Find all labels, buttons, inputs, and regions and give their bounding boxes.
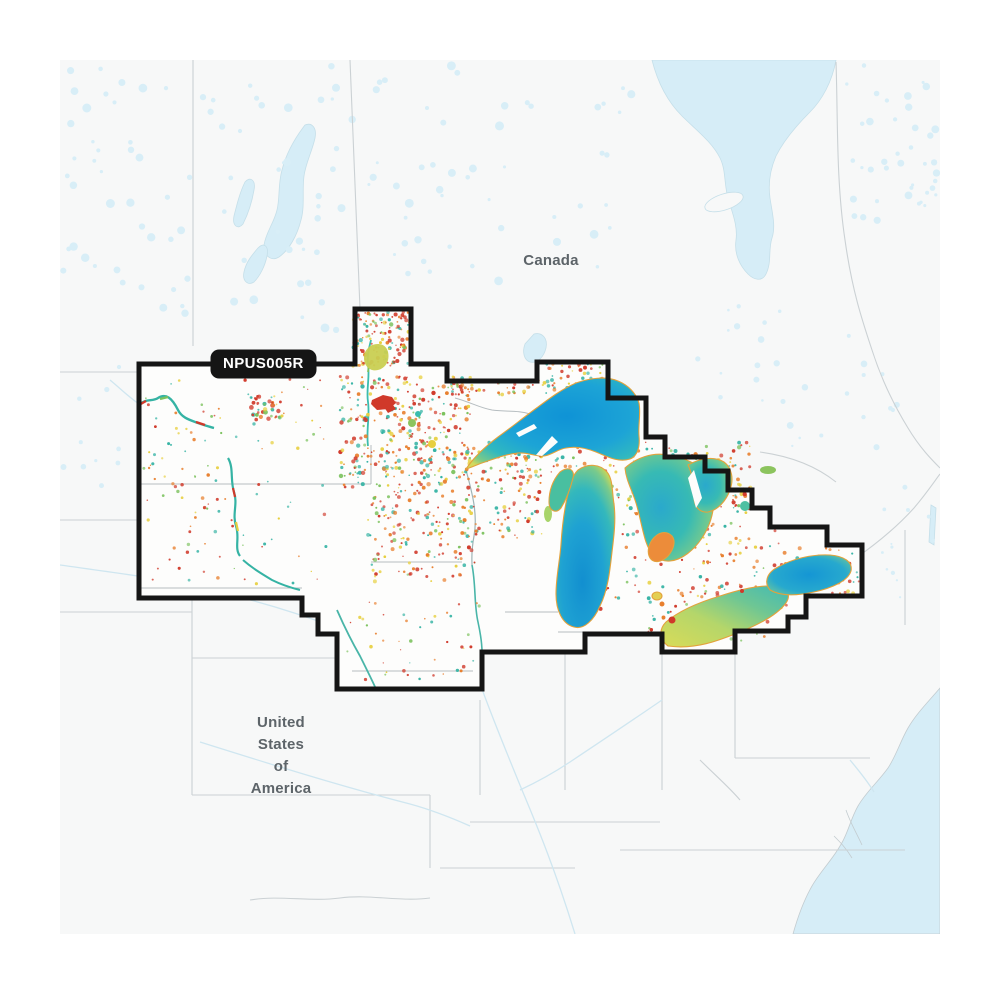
erie-west-shoal bbox=[669, 617, 676, 624]
country-label-united-states: United States of America bbox=[251, 712, 312, 800]
us-label-line-1: United bbox=[251, 712, 312, 734]
region-code-badge: NPUS005R bbox=[212, 351, 315, 377]
us-label-line-3: of bbox=[251, 756, 312, 778]
us-label-line-4: America bbox=[251, 778, 312, 800]
lake-simcoe bbox=[740, 501, 750, 511]
lake-st-clair bbox=[652, 592, 662, 600]
country-label-canada: Canada bbox=[523, 250, 578, 272]
detroit-marker bbox=[660, 602, 665, 607]
erie-ne-marker bbox=[740, 589, 744, 593]
map-canvas bbox=[0, 0, 1000, 1000]
lake-nipissing bbox=[760, 466, 776, 474]
product-image: NPUS005R Canada United States of America bbox=[0, 0, 1000, 1000]
lake-winnibigoshish bbox=[415, 411, 421, 417]
us-label-line-2: States bbox=[251, 734, 312, 756]
leech-lake bbox=[408, 419, 416, 427]
mille-lacs-lake bbox=[428, 440, 436, 448]
